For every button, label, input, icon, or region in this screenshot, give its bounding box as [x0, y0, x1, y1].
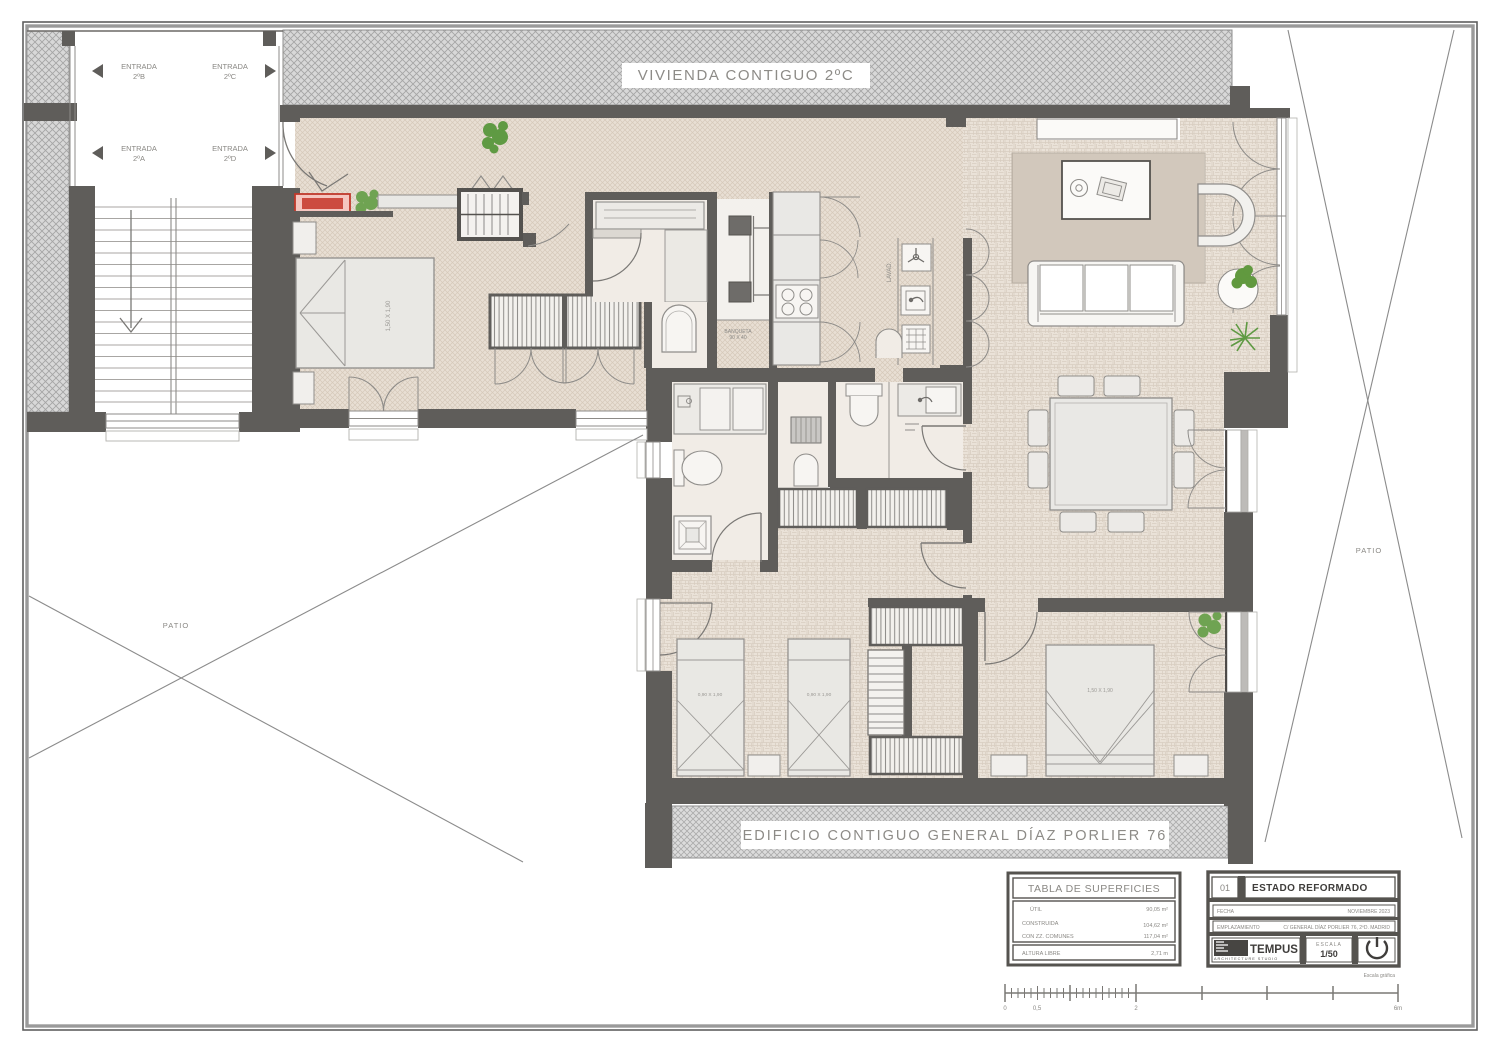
svg-text:CON ZZ. COMUNES: CON ZZ. COMUNES	[1022, 934, 1074, 940]
svg-text:C/ GENERAL DÍAZ PORLIER 76, 2º: C/ GENERAL DÍAZ PORLIER 76, 2ºD. MADRID	[1283, 924, 1390, 931]
svg-text:0,90 X 1,90: 0,90 X 1,90	[698, 692, 723, 698]
svg-text:Escala gráfica: Escala gráfica	[1364, 973, 1396, 979]
svg-text:104,62 m²: 104,62 m²	[1143, 923, 1168, 929]
svg-text:ESTADO REFORMADO: ESTADO REFORMADO	[1252, 883, 1368, 894]
svg-text:ESCALA: ESCALA	[1316, 942, 1342, 948]
svg-text:6m: 6m	[1394, 1006, 1402, 1012]
svg-text:FECHA: FECHA	[1217, 909, 1235, 915]
svg-text:EDIFICIO CONTIGUO GENERAL DÍAZ: EDIFICIO CONTIGUO GENERAL DÍAZ PORLIER 7…	[743, 827, 1168, 844]
svg-text:ENTRADA: ENTRADA	[121, 144, 157, 153]
svg-text:ÚTIL: ÚTIL	[1030, 906, 1042, 913]
svg-text:ALTURA LIBRE: ALTURA LIBRE	[1022, 951, 1061, 957]
svg-text:0,5: 0,5	[1033, 1006, 1042, 1012]
svg-text:TEMPUS: TEMPUS	[1250, 944, 1298, 956]
svg-text:1,50 X 1,90: 1,50 X 1,90	[386, 300, 392, 331]
svg-text:CONSTRUIDA: CONSTRUIDA	[1022, 921, 1059, 927]
svg-text:EMPLAZAMIENTO: EMPLAZAMIENTO	[1217, 925, 1260, 931]
svg-text:NOVIEMBRE 2023: NOVIEMBRE 2023	[1347, 909, 1390, 915]
svg-text:2ºC: 2ºC	[224, 72, 237, 81]
svg-text:2,71 m: 2,71 m	[1151, 951, 1168, 957]
svg-text:2ºB: 2ºB	[133, 72, 145, 81]
svg-text:2ºD: 2ºD	[224, 154, 237, 163]
svg-text:VIVIENDA CONTIGUO 2ºC: VIVIENDA CONTIGUO 2ºC	[638, 67, 855, 84]
svg-text:PATIO: PATIO	[1356, 546, 1382, 555]
svg-text:ENTRADA: ENTRADA	[212, 62, 248, 71]
svg-text:ENTRADA: ENTRADA	[121, 62, 157, 71]
svg-text:90,05 m²: 90,05 m²	[1146, 907, 1168, 913]
svg-text:PATIO: PATIO	[163, 621, 189, 630]
svg-text:TABLA DE SUPERFICIES: TABLA DE SUPERFICIES	[1028, 883, 1160, 895]
svg-text:01: 01	[1220, 883, 1230, 893]
svg-text:0,90 X 1,90: 0,90 X 1,90	[807, 692, 832, 698]
svg-text:1,50 X 1,90: 1,50 X 1,90	[1087, 688, 1113, 694]
svg-text:1/50: 1/50	[1320, 949, 1338, 959]
svg-text:ARCHITECTURE STUDIO: ARCHITECTURE STUDIO	[1214, 957, 1278, 961]
svg-text:ENTRADA: ENTRADA	[212, 144, 248, 153]
svg-text:LAVAD.: LAVAD.	[887, 261, 893, 282]
svg-text:117,04 m²: 117,04 m²	[1144, 934, 1169, 940]
svg-text:90 X 40: 90 X 40	[729, 335, 746, 341]
svg-text:2ºA: 2ºA	[133, 154, 145, 163]
